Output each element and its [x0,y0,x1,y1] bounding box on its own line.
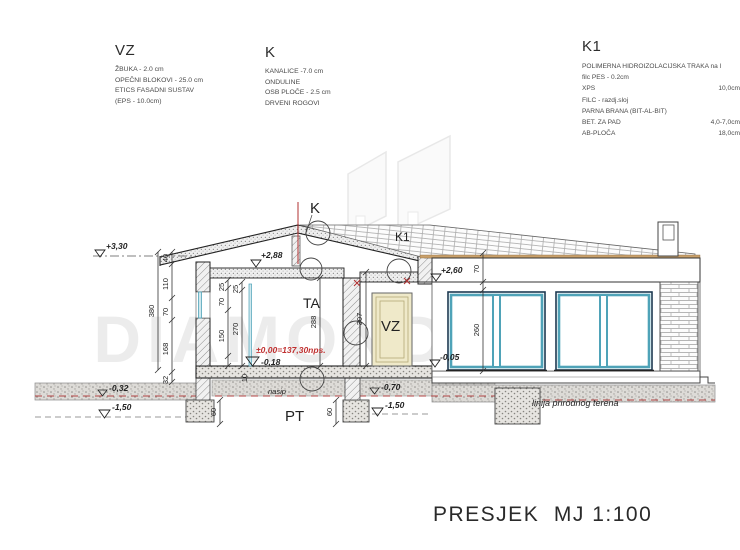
level-minus150-left: -1,50 [112,402,132,412]
dim-380: 380 [147,305,156,318]
label-ta: TA [303,295,321,311]
level-minus018: -0,18 [261,357,281,367]
dim-260: 260 [472,324,481,337]
drawing-title: PRESJEK MJ 1:100 [433,503,652,527]
level-plus330: +3,30 [106,241,128,251]
label-k: K [310,200,320,217]
dim-60a: 60 [209,408,218,416]
level-minus032: -0,32 [109,383,129,393]
section-drawing: DIAMOND [0,0,740,550]
blueprint-page: VZ ŽBUKA - 2.0 cm OPEČNI BLOKOVI - 25.0 … [0,0,740,550]
dim-70: 70 [161,308,170,316]
window-unit-2 [554,292,654,371]
note-terrain-line: linija prirodnog terena [532,398,619,408]
window-unit-1 [446,292,547,371]
interior-partition [249,284,252,366]
level-minus070: -0,70 [381,382,401,392]
dim-288: 288 [309,316,318,329]
level-minus150-mid: -1,50 [385,400,405,410]
stone-pillar [660,282,698,371]
note-nasip: nasip [268,387,286,396]
dim-25a: 25 [217,283,226,291]
level-plus260: +2,60 [441,265,463,275]
label-pt: PT [285,408,304,425]
dim-150: 150 [217,330,226,343]
level-zero: ±0,00=137,30nps. [256,345,326,355]
dim-40: 40 [161,254,170,262]
label-k1: K1 [395,230,410,244]
dim-307: 307 [355,313,364,326]
dim-110: 110 [161,278,170,290]
section-left-wall [196,262,210,366]
dim-32: 32 [161,376,170,384]
dim-25b: 25 [231,285,240,293]
dim-in70: 70 [217,298,226,306]
dim-168: 168 [161,343,170,356]
dim-r70: 70 [472,265,481,273]
level-plus288: +2,88 [261,250,283,260]
level-minus005: -0,05 [440,352,460,362]
left-window-glass [199,292,202,318]
tile-roof-elevation [300,222,700,258]
label-vz-door: VZ [381,318,400,335]
dim-10: 10 [240,374,249,382]
dim-60b: 60 [325,408,334,416]
dim-270: 270 [231,323,240,336]
watermark-logo [348,136,450,235]
